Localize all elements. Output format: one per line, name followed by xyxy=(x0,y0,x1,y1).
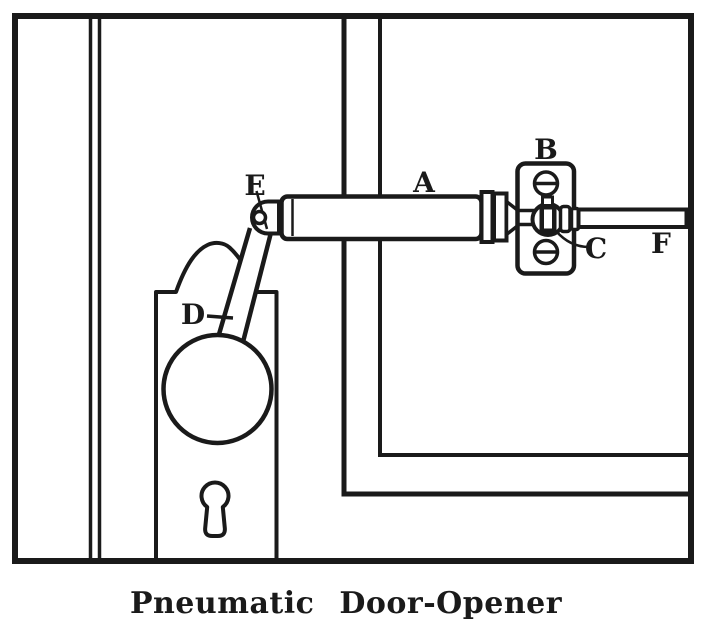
door-knob xyxy=(164,335,272,443)
clamp-slot xyxy=(544,210,552,229)
label-bracket: B xyxy=(534,133,558,166)
label-cylinder: A xyxy=(412,166,436,199)
label-clamp: C xyxy=(585,232,607,265)
label-rod: F xyxy=(651,227,671,260)
rod-collar-1 xyxy=(561,207,571,232)
label-pivot: E xyxy=(244,169,265,202)
label-knob: D xyxy=(181,298,205,331)
clamp-pin xyxy=(543,197,553,206)
figure-caption: Pneumatic Door-Opener xyxy=(0,586,692,621)
figure-pneumatic-door-opener: A B C D E F Pneumatic Door-Opener xyxy=(0,0,720,640)
drawing-frame xyxy=(15,16,691,561)
label-d-leader xyxy=(207,316,233,318)
push-rod xyxy=(579,210,687,228)
keyhole xyxy=(202,482,229,536)
pivot-pin-hole xyxy=(254,212,266,224)
cylinder-cap-ring-2 xyxy=(494,194,507,241)
cylinder-cap-ring-1 xyxy=(482,192,493,242)
door-opener-diagram: A B C D E F xyxy=(0,0,720,640)
cylinder-body xyxy=(282,197,482,240)
